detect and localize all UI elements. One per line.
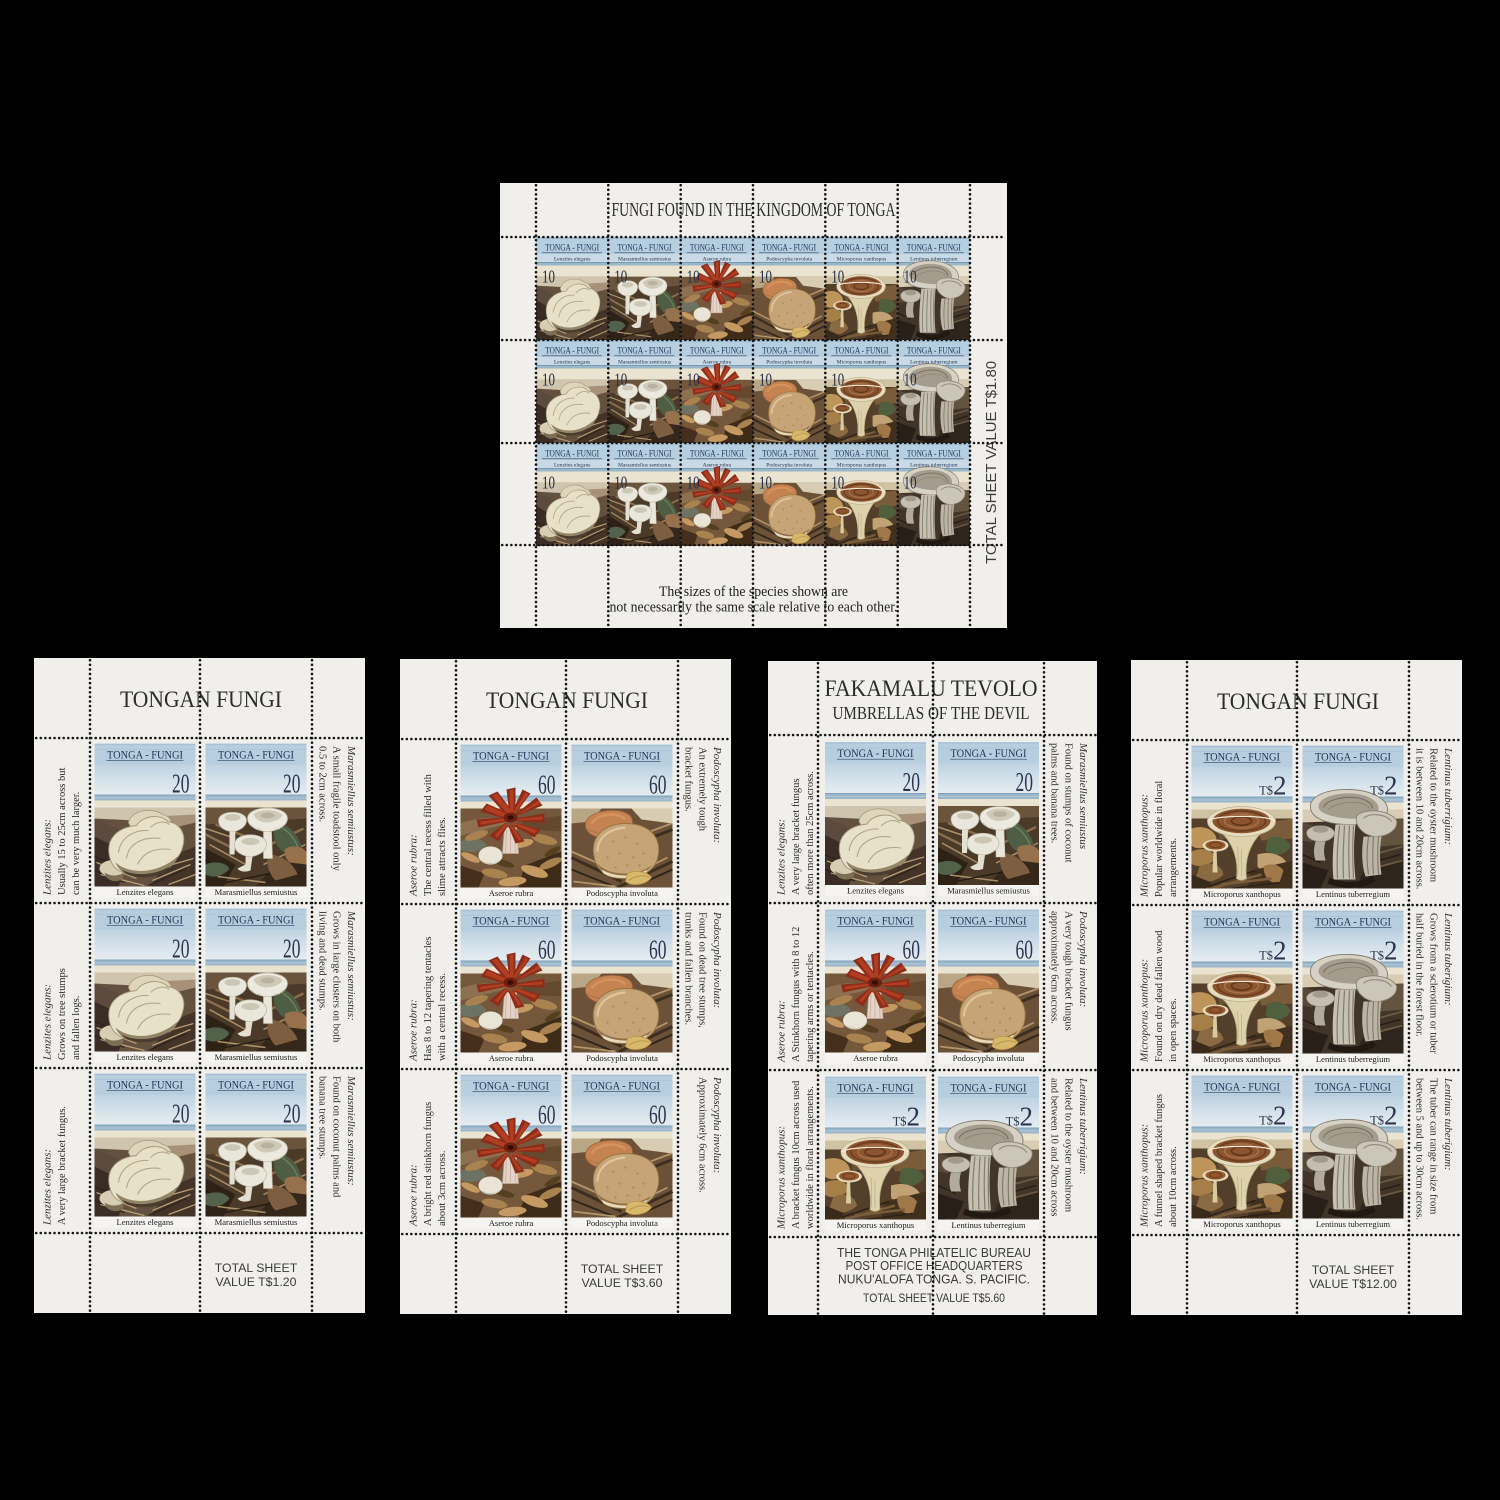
svg-text:Podoscypha involuta:: Podoscypha involuta: [711,746,723,843]
svg-text:Aseroe rubra:: Aseroe rubra: [408,1164,420,1227]
svg-text:A bracket fungus 10cm across u: A bracket fungus 10cm across used [791,1080,802,1229]
svg-text:banana tree stumps.: banana tree stumps. [317,1076,328,1159]
svg-text:Lentinus tuberigium:: Lentinus tuberigium: [1442,912,1454,1006]
svg-text:palms and banana trees.: palms and banana trees. [1049,743,1060,843]
svg-text:Microporus xanthopus:: Microporus xanthopus: [1139,959,1151,1063]
svg-text:Popular worldwide in floral: Popular worldwide in floral [1154,781,1165,897]
svg-text:Aseroe rubra:: Aseroe rubra: [408,999,420,1062]
svg-text:worldwide in floral arrangemen: worldwide in floral arrangements. [805,1086,816,1229]
svg-text:A bright red stinkhorn fungus: A bright red stinkhorn fungus [423,1102,434,1226]
svg-text:bracket fungus.: bracket fungus. [683,747,694,812]
svg-text:Lenzites elegans:: Lenzites elegans: [42,1149,54,1226]
svg-text:arrangements.: arrangements. [1168,838,1179,897]
svg-text:Has 8 to 12 tapering tentacles: Has 8 to 12 tapering tentacles [423,936,434,1061]
svg-text:Found on coconut palms and: Found on coconut palms and [331,1076,342,1198]
svg-text:Microporus xanthopus:: Microporus xanthopus: [776,1126,788,1230]
svg-text:FAKAMALU TEVOLO: FAKAMALU TEVOLO [825,676,1038,702]
svg-text:Marasmiellus semiustus:: Marasmiellus semiustus: [345,910,357,1021]
svg-text:approximately 6cm across.: approximately 6cm across. [1049,911,1060,1024]
svg-text:Lentinus tuberrigium:: Lentinus tuberrigium: [1077,1077,1089,1175]
svg-text:trunks and fallen branches.: trunks and fallen branches. [683,912,694,1025]
svg-text:about 10cm across.: about 10cm across. [1168,1146,1179,1227]
svg-text:Microporus xanthopus:: Microporus xanthopus: [1139,794,1151,898]
svg-text:half buried in the forest floo: half buried in the forest floor. [1414,913,1425,1037]
svg-text:Found on stumps of coconut: Found on stumps of coconut [1063,743,1074,863]
svg-text:slime attracts flies.: slime attracts flies. [437,817,448,896]
svg-text:An extremely tough: An extremely tough [697,747,708,832]
svg-text:Grows in large clusters on bot: Grows in large clusters on both [331,911,342,1043]
svg-text:TOTAL SHEET VALUE T$1.80: TOTAL SHEET VALUE T$1.80 [983,361,1000,564]
svg-text:and between 10 and 20cm across: and between 10 and 20cm across [1049,1078,1060,1217]
svg-text:Grows from a sclerotium or tub: Grows from a sclerotium or tuber [1428,913,1439,1054]
svg-text:Aseroe rubra:: Aseroe rubra: [776,1000,788,1063]
svg-text:in open spaces.: in open spaces. [1168,998,1179,1062]
svg-text:A small fragile toadstool only: A small fragile toadstool only [331,746,342,872]
svg-text:Marasmiellus semiustus: Marasmiellus semiustus [1077,742,1089,849]
svg-text:Podoscypha involuta:: Podoscypha involuta: [1077,910,1089,1007]
svg-text:Lenzites elegans:: Lenzites elegans: [42,984,54,1061]
svg-text:TOTAL SHEET: TOTAL SHEET [1312,1263,1395,1277]
svg-text:Grows on tree stumps: Grows on tree stumps [57,968,68,1060]
svg-text:Lentinus tuberrigium:: Lentinus tuberrigium: [1442,747,1454,845]
svg-text:TONGAN FUNGI: TONGAN FUNGI [120,687,282,713]
svg-text:VALUE T$12.00: VALUE T$12.00 [1309,1277,1397,1291]
svg-text:Approximately 6cm across.: Approximately 6cm across. [697,1077,708,1193]
svg-text:Related to the oyster mushroom: Related to the oyster mushroom [1428,748,1439,882]
svg-text:A very tough bracket fungus: A very tough bracket fungus [1063,911,1074,1031]
svg-text:about 3cm across.: about 3cm across. [437,1150,448,1226]
svg-text:VALUE T$1.20: VALUE T$1.20 [216,1275,297,1289]
svg-text:The tuber can range in size fr: The tuber can range in size from [1428,1078,1439,1214]
svg-text:can be very much larger.: can be very much larger. [71,792,82,895]
svg-text:Found on dead tree stumps,: Found on dead tree stumps, [697,912,708,1028]
svg-text:VALUE T$3.60: VALUE T$3.60 [582,1276,663,1290]
svg-text:often more than 25cm across.: often more than 25cm across. [805,771,816,895]
svg-text:Podoscypha involuta:: Podoscypha involuta: [711,1076,723,1173]
svg-text:Found on dry dead fallen wood: Found on dry dead fallen wood [1154,930,1165,1062]
svg-text:Podoscypha involuta:: Podoscypha involuta: [711,911,723,1008]
svg-text:A very large bracket fungus.: A very large bracket fungus. [57,1106,68,1225]
svg-text:NUKU'ALOFA TONGA. S. PACIFIC.: NUKU'ALOFA TONGA. S. PACIFIC. [838,1272,1030,1287]
svg-text:it is between 10 and 20cm acro: it is between 10 and 20cm across. [1414,748,1425,889]
svg-text:Microporus xanthopus:: Microporus xanthopus: [1139,1124,1151,1228]
svg-text:Marasmiellus semiustus:: Marasmiellus semiustus: [345,745,357,856]
svg-text:TONGAN FUNGI: TONGAN FUNGI [486,688,648,714]
svg-text:The central recess filled with: The central recess filled with [423,773,434,896]
svg-text:living and dead stumps.: living and dead stumps. [317,911,328,1011]
svg-text:with a central recess.: with a central recess. [437,973,448,1061]
svg-text:A Stinkhorn fungus with 8 to 1: A Stinkhorn fungus with 8 to 12 [791,927,802,1062]
svg-text:tapering arms or tentacles.: tapering arms or tentacles. [805,951,816,1062]
svg-text:Lenzites elegans:: Lenzites elegans: [776,819,788,896]
svg-text:between 5 and up to 30cm acros: between 5 and up to 30cm across. [1414,1078,1425,1220]
svg-text:UMBRELLAS OF THE DEVIL: UMBRELLAS OF THE DEVIL [833,703,1030,723]
svg-text:Usually 15 to 25cm across but: Usually 15 to 25cm across but [57,767,68,895]
svg-text:and fallen logs.: and fallen logs. [71,996,82,1060]
svg-text:TOTAL SHEET: TOTAL SHEET [581,1262,664,1276]
svg-text:A very large bracket fungus: A very large bracket fungus [791,779,802,895]
svg-text:Related to the oyster mushroom: Related to the oyster mushroom [1063,1078,1074,1212]
svg-text:Lenzites elegans:: Lenzites elegans: [42,819,54,896]
svg-text:A funnel shaped bracket fungus: A funnel shaped bracket fungus [1154,1094,1165,1227]
svg-text:0.5 to 2cm across.: 0.5 to 2cm across. [317,746,328,822]
svg-text:TOTAL SHEET: TOTAL SHEET [215,1261,298,1275]
svg-text:Aseroe rubra:: Aseroe rubra: [408,834,420,897]
svg-text:Lentinus tuberigium:: Lentinus tuberigium: [1442,1077,1454,1171]
svg-text:Marasmiellus semiustus:: Marasmiellus semiustus: [345,1075,357,1186]
svg-text:TONGAN FUNGI: TONGAN FUNGI [1217,689,1379,715]
